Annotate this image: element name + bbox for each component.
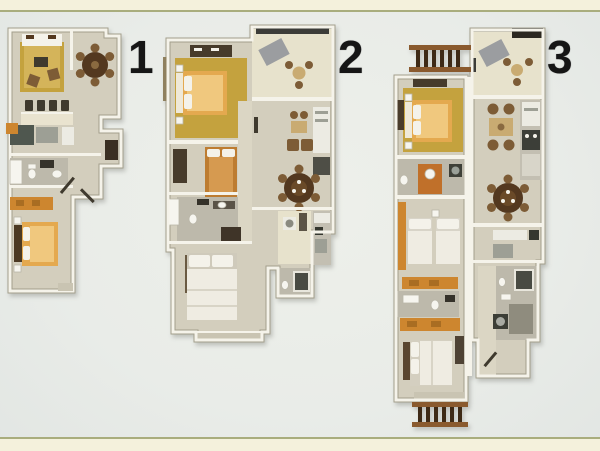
nightstand — [432, 210, 439, 217]
side-table — [291, 121, 307, 133]
plan-1-label: 1 — [128, 34, 153, 80]
floor-plan-sheet: 1 — [0, 0, 600, 451]
table — [511, 64, 523, 76]
toilet — [431, 300, 439, 310]
counter — [493, 230, 527, 240]
fridge — [62, 127, 74, 145]
nightstand — [14, 217, 21, 224]
headboard — [403, 342, 410, 380]
cabinet — [6, 123, 18, 134]
sink — [52, 170, 62, 178]
floor-plan-1-render — [4, 27, 130, 295]
top-border-band — [0, 0, 600, 12]
entry-doorway — [105, 140, 118, 160]
plan-3-label: 3 — [547, 34, 572, 80]
dresser — [397, 100, 404, 130]
floor-plan-3 — [389, 24, 553, 430]
bar-stool — [49, 100, 57, 111]
bottom-border-band — [0, 437, 600, 451]
shower — [294, 272, 309, 291]
wardrobe — [173, 149, 187, 183]
bar-stool — [61, 100, 69, 111]
toilet — [189, 214, 197, 224]
floor-plan-2 — [161, 21, 341, 343]
shower-room — [278, 268, 312, 296]
sink — [425, 169, 435, 179]
nightstand — [405, 142, 412, 149]
pergola-bottom — [412, 402, 468, 427]
wardrobe — [413, 79, 447, 87]
balcony-step — [58, 283, 73, 291]
stove — [529, 230, 539, 240]
closet — [221, 227, 241, 241]
bathtub — [169, 199, 179, 225]
corridor — [238, 101, 252, 241]
wardrobe — [455, 336, 464, 364]
floor-plan-1 — [4, 27, 130, 295]
nightstand — [176, 65, 183, 72]
armchair — [287, 139, 299, 151]
counter — [522, 154, 540, 176]
toilet — [400, 175, 408, 185]
sink — [218, 202, 226, 208]
kitchen — [278, 211, 331, 265]
headboard — [405, 102, 412, 138]
small-bathroom — [396, 291, 460, 331]
toilet — [499, 278, 506, 287]
plan-2-label: 2 — [338, 34, 363, 80]
bathroom — [396, 159, 466, 199]
sink — [501, 294, 511, 300]
shelf — [299, 213, 307, 231]
nightstand — [176, 117, 183, 124]
kitchen-counter — [314, 213, 330, 223]
toilet — [282, 281, 289, 290]
floor-plan-3-render — [389, 24, 553, 430]
study-room — [252, 27, 333, 101]
bathtub — [10, 160, 22, 184]
sink-counter — [403, 295, 419, 303]
toilet — [28, 169, 36, 179]
table — [293, 67, 306, 80]
bar-stool — [25, 100, 33, 111]
cabinet — [313, 157, 330, 175]
oven — [522, 130, 540, 150]
coffee-table — [34, 57, 48, 67]
floor-plan-2-render — [161, 21, 341, 343]
headboard — [14, 225, 22, 262]
master-bedroom — [396, 79, 466, 159]
armchair — [301, 139, 313, 151]
headboard — [176, 73, 183, 113]
bar-stool — [37, 100, 45, 111]
nightstand — [405, 94, 412, 101]
fridge — [522, 102, 540, 126]
shower — [515, 270, 533, 290]
stove — [36, 127, 58, 143]
study-room — [472, 28, 543, 99]
bathroom — [10, 158, 73, 188]
pergola-top — [409, 45, 471, 72]
console — [254, 117, 258, 133]
rug-strip — [398, 202, 406, 270]
nightstand — [14, 265, 21, 272]
